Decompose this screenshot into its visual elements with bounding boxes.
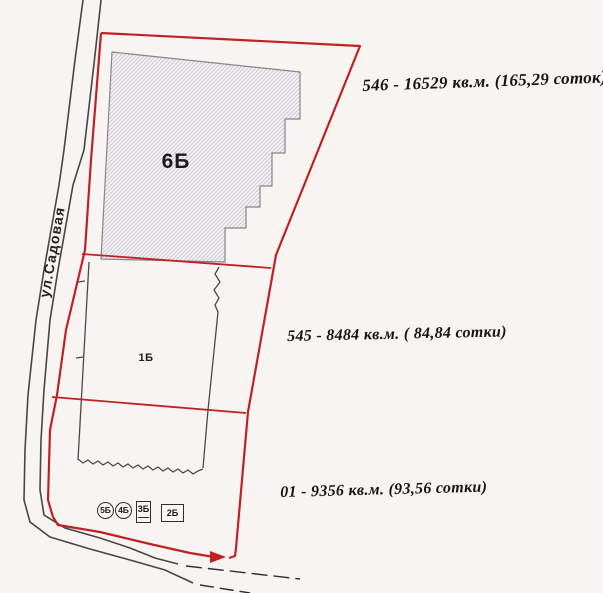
building-marker-2b: 2Б bbox=[161, 504, 184, 522]
building-marker-4b-label: 4Б bbox=[118, 506, 129, 515]
building-marker-3b-label: 3Б bbox=[138, 505, 149, 514]
hatched-area-6b bbox=[101, 52, 300, 262]
cadastral-plan-map: ул.Садовая 6Б 1Б 546 - 16529 кв.м. (165,… bbox=[0, 0, 603, 593]
red-arrowhead bbox=[210, 551, 226, 563]
inner-parcel-right-line bbox=[203, 267, 220, 468]
road-line-inner-dashed bbox=[186, 566, 300, 579]
building-marker-2b-label: 2Б bbox=[167, 509, 178, 518]
inner-parcel-left-line bbox=[78, 262, 89, 460]
building-marker-3b-divider bbox=[138, 517, 149, 518]
inner-parcel-tick-2 bbox=[76, 357, 83, 358]
building-marker-5b: 5Б bbox=[97, 502, 114, 519]
building-marker-4b: 4Б bbox=[115, 502, 132, 519]
plot-label-6b: 6Б bbox=[162, 150, 191, 174]
building-marker-3b: 3Б bbox=[136, 501, 151, 523]
road-line-outer-dashed bbox=[200, 585, 250, 593]
plot-label-1b: 1Б bbox=[138, 352, 153, 364]
inner-parcel-bottom-zigzag bbox=[78, 459, 203, 474]
inner-parcel-tick-1 bbox=[78, 281, 85, 282]
building-marker-5b-label: 5Б bbox=[100, 506, 111, 515]
